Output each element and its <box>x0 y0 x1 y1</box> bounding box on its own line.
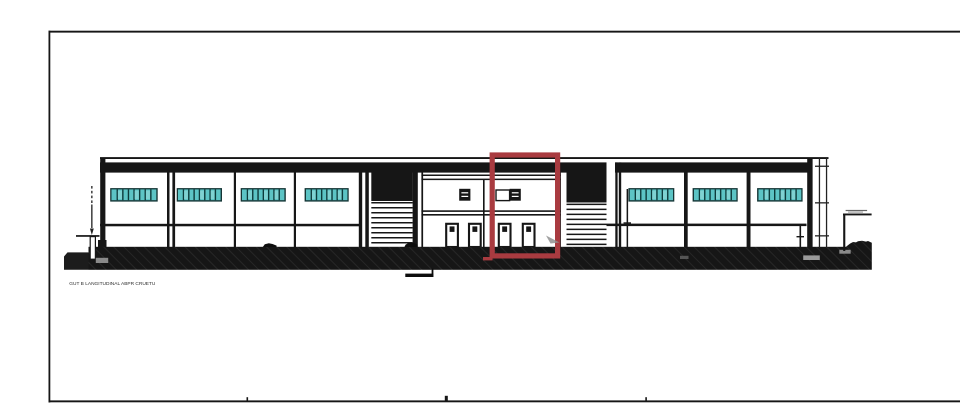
svg-text:GUT B LANGITUDINAL ABPR CRUETU: GUT B LANGITUDINAL ABPR CRUETU <box>69 281 156 287</box>
